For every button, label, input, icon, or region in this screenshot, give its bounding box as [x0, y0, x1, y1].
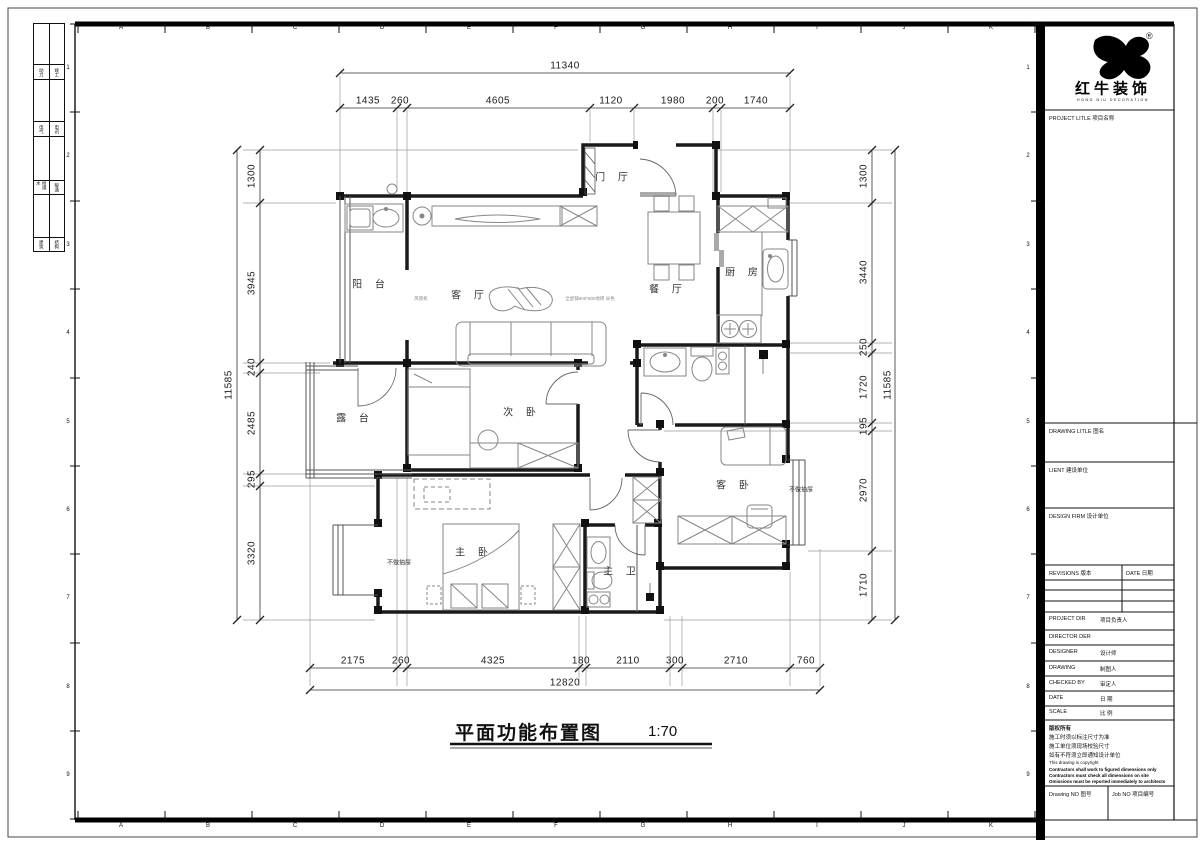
- grid-row-label: 1: [66, 65, 69, 71]
- room-label-terrace: 露 台: [336, 410, 374, 425]
- grid-row-label: 6: [1026, 507, 1029, 513]
- dim-seg: 1300: [247, 164, 258, 188]
- room-label-foyer: 门 厅: [595, 169, 633, 184]
- grid-col-label: A: [119, 823, 123, 829]
- strip-label: 动力: [34, 65, 49, 79]
- dim-seg: 260: [391, 96, 409, 107]
- room-label-guest: 客 卧: [716, 477, 754, 492]
- dim-seg: 195: [859, 417, 870, 435]
- grid-row-label: 9: [66, 772, 69, 778]
- grid-col-label: E: [467, 823, 471, 829]
- grid-row-label: 5: [1026, 419, 1029, 425]
- dim-seg: 1740: [744, 96, 768, 107]
- grid-col-label: B: [206, 25, 210, 31]
- dim-total-left: 11585: [224, 370, 235, 400]
- tb-row-cn: 审定人: [1100, 680, 1117, 688]
- tb-rev-date-label: DATE 日期: [1126, 569, 1153, 577]
- grid-row-label: 2: [66, 153, 69, 159]
- dim-seg: 1980: [661, 96, 685, 107]
- room-label-bedroom2: 次 卧: [503, 404, 541, 419]
- grid-row-label: 2: [1026, 153, 1029, 159]
- plan-scale: 1:70: [648, 723, 677, 740]
- dim-seg: 3320: [247, 541, 258, 565]
- furniture: [345, 184, 788, 612]
- tb-job-no-label: Job NO 项目编号: [1112, 790, 1154, 798]
- grid-col-label: G: [641, 823, 646, 829]
- grid-row-label: 3: [1026, 242, 1029, 248]
- dim-seg: 1710: [859, 573, 870, 597]
- tb-revisions-label: REVISIONS 版本: [1049, 569, 1091, 577]
- grid-col-label: I: [816, 823, 818, 829]
- grid-row-label: 8: [66, 684, 69, 690]
- grid-col-label: G: [641, 25, 646, 31]
- wall-piers: [336, 141, 790, 614]
- grid-col-label: H: [728, 25, 732, 31]
- grid-col-label: K: [989, 25, 993, 31]
- grid-col-label: C: [293, 25, 297, 31]
- tb-row-cn: 项目负责人: [1100, 616, 1128, 624]
- grid-row-label: 4: [66, 330, 69, 336]
- grid-col-label: K: [989, 823, 993, 829]
- strip-label: 结构: [49, 238, 65, 251]
- tb-copyright: Contractors must check all dimensions on…: [1049, 773, 1149, 778]
- tb-copyright: 施工单位须现场校验尺寸: [1049, 742, 1110, 750]
- logo-subtitle: HONG NIU DECORATION: [1077, 98, 1149, 102]
- tb-copyright: Contractors shall work to figured dimens…: [1049, 767, 1157, 772]
- dim-seg: 2175: [341, 656, 365, 667]
- tb-drawing-label: DRAWING LITLE 图名: [1049, 427, 1104, 435]
- grid-col-label: J: [903, 823, 906, 829]
- dimension-lines: [237, 73, 895, 690]
- dim-seg: 760: [797, 656, 815, 667]
- plan-title: 平面功能布置图: [455, 718, 602, 745]
- strip-label: 暖通: [49, 181, 65, 194]
- tb-copyright: 施工时须以标注尺寸为准: [1049, 733, 1110, 741]
- grid-row-label: 1: [1026, 65, 1029, 71]
- note-no-drawer: 不做抽屉: [387, 558, 411, 567]
- tb-row-en: CHECKED BY: [1049, 680, 1085, 686]
- dim-seg: 295: [247, 470, 258, 488]
- tb-row-cn: 比 例: [1100, 709, 1113, 717]
- dim-seg: 300: [666, 656, 684, 667]
- dim-seg: 2970: [859, 478, 870, 502]
- room-label-master: 主 卧: [455, 544, 493, 559]
- grid-col-label: B: [206, 823, 210, 829]
- hatched-wall: [585, 148, 595, 194]
- tb-row-cn: 设计师: [1100, 649, 1117, 657]
- tb-row-en: DATE: [1049, 695, 1063, 701]
- tb-firm-label: DESIGN FIRM 设计单位: [1049, 512, 1109, 520]
- grid-col-label: D: [380, 25, 384, 31]
- dim-seg: 4325: [481, 656, 505, 667]
- dim-seg: 250: [859, 338, 870, 356]
- grid-row-label: 6: [66, 507, 69, 513]
- tb-row-cn: 日 期: [1100, 695, 1113, 703]
- strip-label: 建筑: [34, 238, 49, 251]
- dim-total-top: 11340: [550, 61, 580, 72]
- tb-row-en: DESIGNER: [1049, 649, 1078, 655]
- grid-col-label: F: [554, 823, 558, 829]
- tb-row-en: SCALE: [1049, 709, 1067, 715]
- grid-col-label: D: [380, 823, 384, 829]
- dim-seg: 260: [392, 656, 410, 667]
- note-ac-unit: 风管机: [414, 296, 428, 302]
- dim-seg: 200: [706, 96, 724, 107]
- dim-seg: 2710: [724, 656, 748, 667]
- tb-copyright: 版权所有: [1049, 724, 1071, 732]
- tb-copyright: Omissions must be reported immediately t…: [1049, 779, 1165, 784]
- tb-row-en: DRAWING: [1049, 665, 1075, 671]
- dim-seg: 1300: [859, 164, 870, 188]
- dim-seg: 3945: [247, 271, 258, 295]
- drawing-sheet: A B C D E F G H I J K A B C D E F G H I …: [0, 0, 1200, 844]
- grid-col-label: C: [293, 823, 297, 829]
- strip-label: 电气: [34, 122, 49, 136]
- tb-copyright: This drawing is copyright: [1049, 760, 1099, 765]
- grid-col-label: E: [467, 25, 471, 31]
- grid-col-label: H: [728, 823, 732, 829]
- tb-row-en: DIRECTOR DER: [1049, 634, 1091, 640]
- sheet-frame: [8, 8, 1197, 840]
- registered-mark: ®: [1146, 31, 1153, 41]
- note-no-drawer: 不做抽屉: [789, 485, 813, 494]
- discipline-strip: 动力竣工 电气电讯 给排水暖通 建筑结构: [33, 23, 65, 252]
- dim-seg: 240: [247, 358, 258, 376]
- dim-seg: 180: [572, 656, 590, 667]
- tb-row-en: PROJECT DIR: [1049, 616, 1086, 622]
- grid-col-label: I: [816, 25, 818, 31]
- grid-col-label: J: [903, 25, 906, 31]
- dim-seg: 2485: [247, 411, 258, 435]
- grid-row-label: 5: [66, 419, 69, 425]
- room-label-balcony: 阳 台: [352, 276, 390, 291]
- dim-seg: 4605: [486, 96, 510, 107]
- grid-row-label: 7: [1026, 595, 1029, 601]
- dim-seg: 1120: [599, 96, 623, 107]
- grid-row-label: 8: [1026, 684, 1029, 690]
- room-label-kitchen: 厨 房: [725, 264, 763, 279]
- dimension-ticks: [233, 69, 899, 694]
- dim-seg: 1435: [356, 96, 380, 107]
- room-label-living: 客 厅: [451, 287, 489, 302]
- dim-seg: 1720: [859, 375, 870, 399]
- grid-row-label: 9: [1026, 772, 1029, 778]
- grid-row-label: 7: [66, 595, 69, 601]
- note-floor-tile: 全屋铺600*600地砖 米色: [565, 296, 615, 302]
- tb-project-label: PROJECT LITLE 项目名称: [1049, 114, 1114, 122]
- dim-seg: 3440: [859, 260, 870, 284]
- strip-label: 给排水: [34, 181, 49, 194]
- windows: [306, 196, 805, 595]
- grid-col-label: F: [554, 25, 558, 31]
- grid-row-label: 4: [1026, 330, 1029, 336]
- room-label-master-bath: 主 卫: [603, 563, 641, 578]
- strip-label: 电讯: [49, 122, 65, 136]
- dim-total-bottom: 12820: [550, 678, 580, 689]
- dim-seg: 2110: [616, 656, 640, 667]
- tb-row-cn: 制图人: [1100, 665, 1117, 673]
- grid-col-label: A: [119, 25, 123, 31]
- tb-copyright: 如有不符须立即通知设计单位: [1049, 751, 1121, 759]
- strip-label: 竣工: [49, 65, 65, 79]
- dim-total-right: 11585: [883, 370, 894, 400]
- room-label-dining: 餐 厅: [649, 281, 687, 296]
- tb-client-label: LIENT 建设单位: [1049, 466, 1088, 474]
- logo-bull-icon: [1093, 36, 1150, 80]
- logo-name: 红牛装饰: [1075, 78, 1151, 99]
- grid-row-label: 3: [66, 242, 69, 248]
- tb-drawing-no-label: Drawing NO 图号: [1049, 790, 1091, 798]
